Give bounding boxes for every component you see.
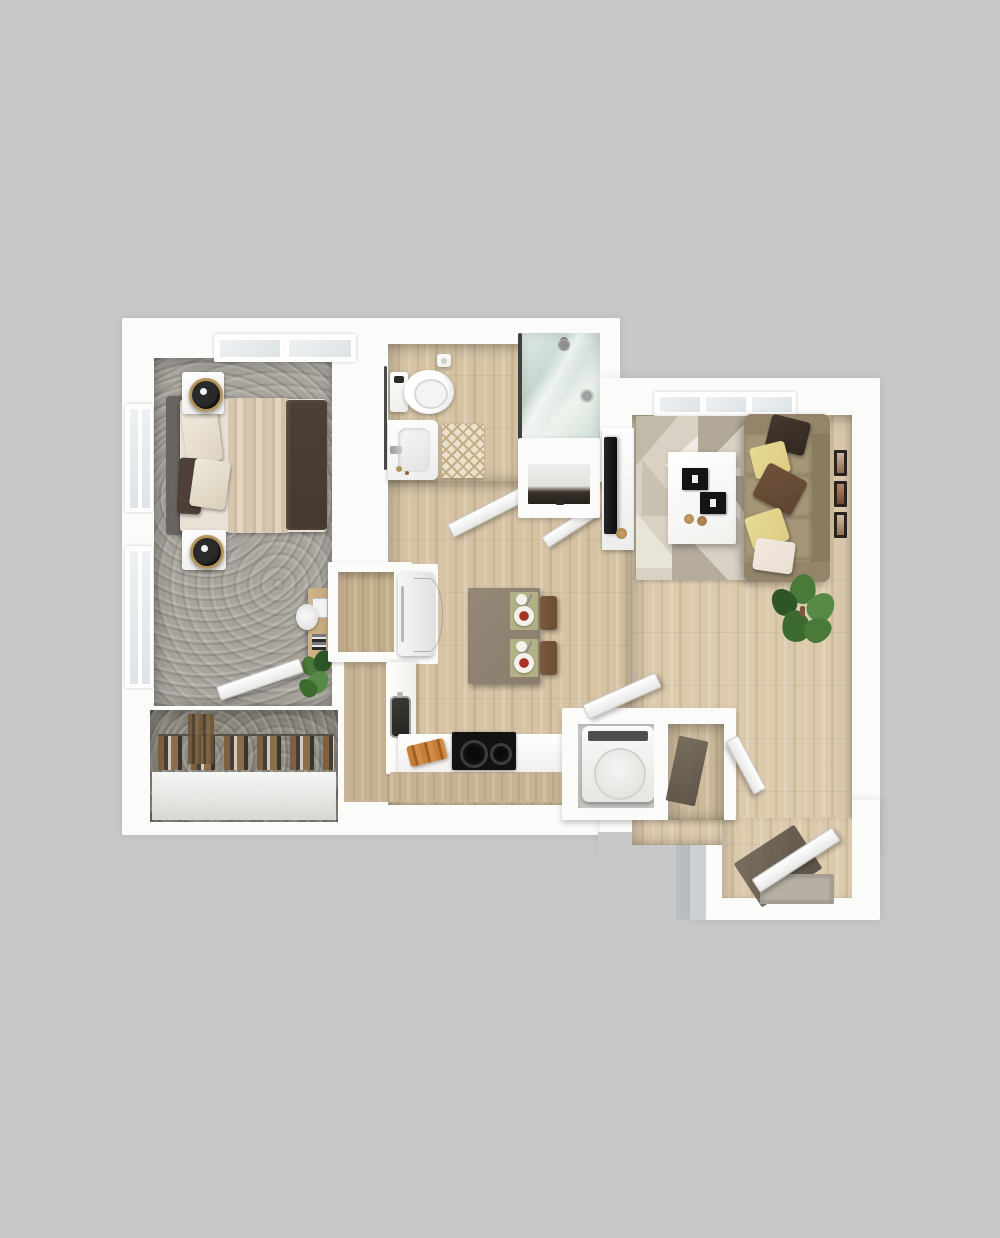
- lamp-highlight: [201, 545, 208, 552]
- shower-stall: [522, 333, 600, 445]
- showerhead-icon: [558, 339, 570, 351]
- place-setting: [510, 592, 538, 630]
- clothes-items: [158, 736, 334, 770]
- bedroom-side-window-lower: [125, 546, 153, 688]
- shower-drain-icon: [580, 389, 594, 403]
- bed-pillow-top: [181, 408, 223, 464]
- towel-bar-icon: [384, 366, 387, 470]
- bedroom-side-window-upper: [125, 404, 153, 512]
- tp-roll: [441, 358, 447, 364]
- cup-icon: [697, 516, 707, 526]
- window-pane: [659, 396, 701, 413]
- bed-duvet-drape: [228, 398, 288, 533]
- toilet-flush-button: [394, 376, 404, 383]
- washer-top-load: [582, 726, 654, 802]
- frame-art: [837, 484, 844, 504]
- bathroom-vanity: [388, 420, 438, 480]
- soap-items: [396, 466, 402, 472]
- kitchen-sink: [390, 696, 411, 738]
- fridge-door-arc: [414, 578, 443, 652]
- cooktop: [452, 732, 516, 770]
- closet-handle-icon: [556, 500, 564, 505]
- dinner-plate-icon: [514, 606, 534, 626]
- washer-control-panel: [588, 731, 648, 741]
- bath-mat: [442, 424, 484, 478]
- dining-chair: [540, 641, 557, 675]
- lamp-highlight: [200, 388, 207, 395]
- storage-compartment: [668, 724, 724, 820]
- linen-closet: [518, 438, 600, 518]
- faucet-icon: [390, 446, 402, 454]
- plant-trunk: [800, 606, 805, 616]
- linen-closet-interior: [528, 464, 590, 504]
- burner-icon: [460, 740, 488, 768]
- book-spine-detail: [710, 499, 716, 507]
- living-room-window: [654, 392, 796, 416]
- table-lamp-icon: [190, 535, 224, 569]
- tv-icon: [604, 437, 617, 534]
- sofa-pillow-blush: [752, 537, 796, 574]
- book-spine-detail: [692, 475, 698, 483]
- window-pane: [141, 408, 151, 509]
- pantry-interior: [338, 572, 402, 652]
- closet-floor-light: [152, 772, 336, 820]
- dinner-plate-icon: [514, 653, 534, 673]
- washer-lid-icon: [594, 748, 646, 800]
- living-plant-icon: [770, 572, 836, 648]
- window-pane: [129, 408, 139, 509]
- window-pane: [705, 396, 747, 413]
- wall-art-frame: [834, 481, 847, 507]
- bedroom-transom-window: [214, 334, 356, 362]
- wall-art-frame: [834, 450, 847, 476]
- entry-exterior-shadow: [676, 834, 706, 920]
- floorplan-screenshot: { "scene": { "kind": "3d-floorplan-rende…: [0, 0, 1000, 1238]
- toilet-paper-holder-icon: [437, 354, 451, 367]
- bed: [166, 396, 327, 535]
- floorplan: [0, 0, 1000, 1238]
- vanity-basin: [398, 428, 430, 472]
- toilet: [390, 368, 456, 416]
- desk-chair: [296, 604, 318, 630]
- toilet-seat-ring: [414, 379, 448, 409]
- place-setting: [510, 639, 538, 677]
- sink-faucet-icon: [397, 692, 403, 697]
- dining-chair: [540, 596, 557, 630]
- window-pane: [288, 339, 352, 358]
- cup-icon: [684, 514, 694, 524]
- storage-shadow-panel: [665, 736, 708, 807]
- table-lamp-icon: [189, 378, 223, 412]
- utensil-icon: [526, 641, 533, 653]
- shower-glass-panel-edge: [518, 333, 522, 445]
- window-pane: [219, 339, 281, 358]
- wall-art-frame: [834, 512, 847, 538]
- frame-art: [837, 515, 844, 535]
- bed-pillow-bottom: [189, 458, 231, 511]
- window-pane: [129, 550, 139, 685]
- coffee-table: [668, 452, 736, 544]
- frame-art: [837, 453, 844, 473]
- book-stack-icon: [682, 468, 708, 490]
- console-decor-icon: [616, 528, 627, 539]
- kitchen-counter-vertical-face: [344, 662, 390, 802]
- sofa-back-rail: [810, 414, 830, 582]
- utensil-icon: [526, 594, 533, 606]
- sofa: [744, 414, 830, 582]
- clothes-long-coat: [188, 714, 214, 764]
- fridge-handle-icon: [401, 586, 404, 642]
- closet-hanging-clothes: [158, 714, 334, 772]
- window-pane: [751, 396, 793, 413]
- window-pane: [141, 550, 151, 685]
- refrigerator: [398, 572, 434, 656]
- bed-foot-blanket: [286, 400, 327, 530]
- book-stack-icon: [700, 492, 726, 514]
- burner-icon: [490, 743, 512, 765]
